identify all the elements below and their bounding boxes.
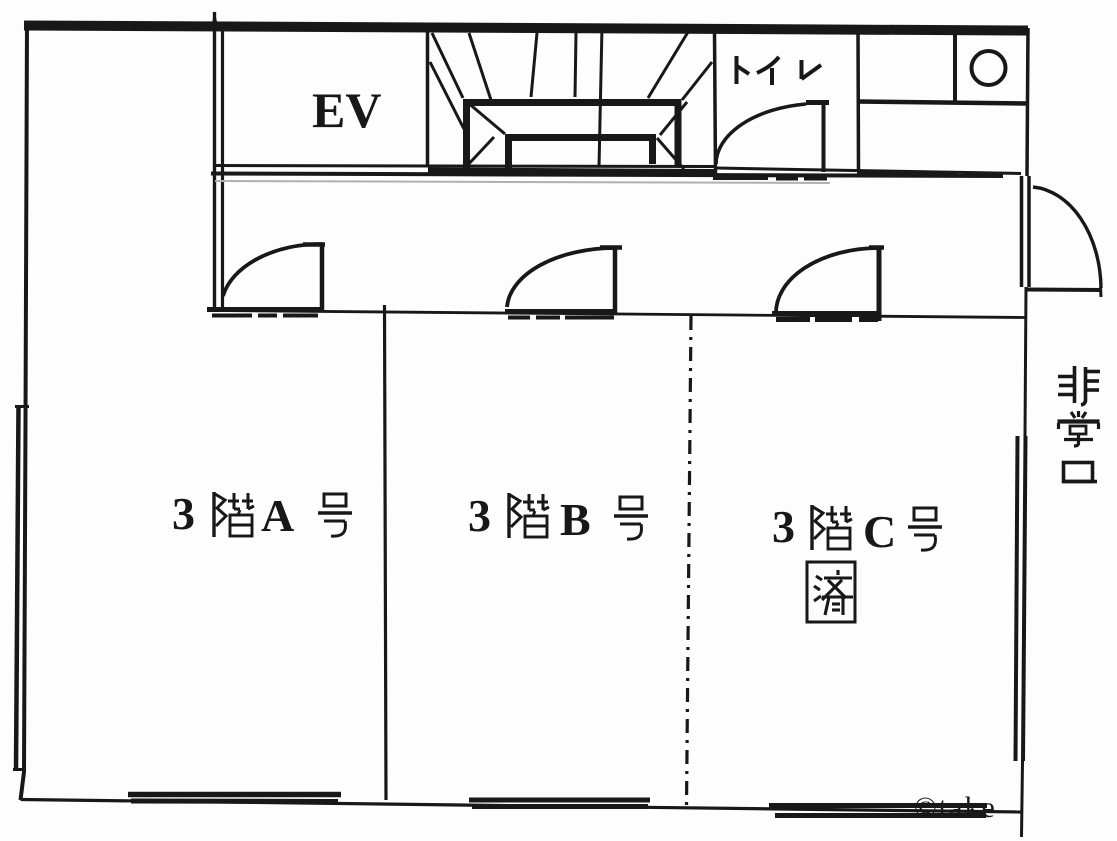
svg-text:A: A bbox=[261, 490, 294, 541]
svg-text:3: 3 bbox=[468, 490, 491, 541]
svg-text:3: 3 bbox=[772, 501, 795, 552]
svg-text:EV: EV bbox=[312, 82, 381, 138]
svg-text:B: B bbox=[560, 494, 591, 545]
svg-text:3: 3 bbox=[172, 488, 195, 539]
svg-text:C: C bbox=[863, 506, 896, 557]
